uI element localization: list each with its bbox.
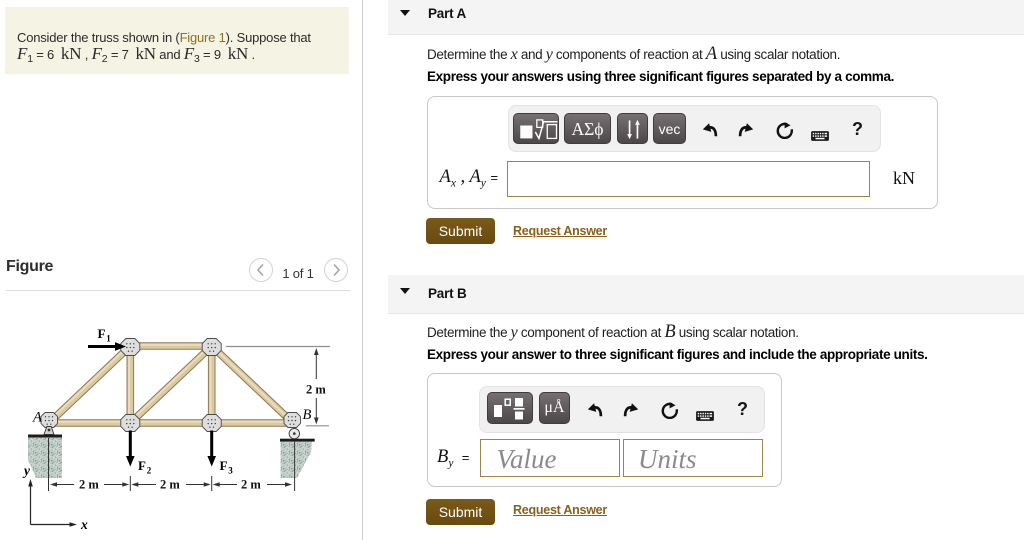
svg-text:y: y [22,463,31,478]
svg-text:F: F [220,458,228,473]
svg-text:F: F [138,458,146,473]
svg-text:F: F [98,326,106,341]
svg-text:B: B [303,407,312,423]
svg-text:1: 1 [106,334,111,344]
svg-text:3: 3 [228,466,233,476]
svg-text:x: x [80,517,88,532]
svg-text:2 m: 2 m [160,478,180,492]
svg-text:2 m: 2 m [79,478,99,492]
svg-text:2: 2 [147,466,152,476]
svg-text:2 m: 2 m [241,478,261,492]
svg-text:2 m: 2 m [306,383,326,397]
svg-text:A: A [32,410,42,426]
